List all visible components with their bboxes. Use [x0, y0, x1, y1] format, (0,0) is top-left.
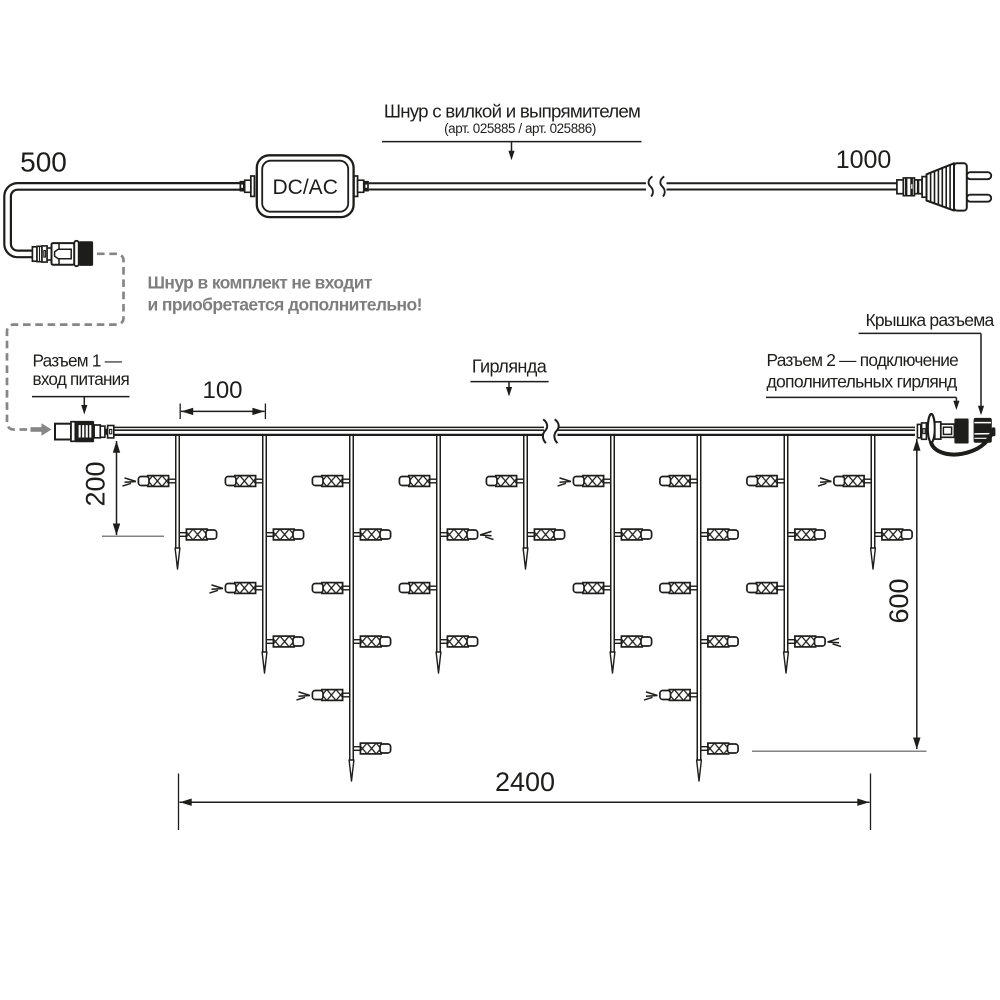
svg-text:дополнительных гирлянд: дополнительных гирлянд — [767, 372, 958, 392]
svg-text:вход питания: вход питания — [33, 370, 130, 389]
svg-text:500: 500 — [20, 147, 67, 178]
svg-text:600: 600 — [884, 578, 914, 623]
svg-text:(арт. 025885 / арт. 025886): (арт. 025885 / арт. 025886) — [444, 121, 596, 136]
svg-text:Разъем 2 — подключение: Разъем 2 — подключение — [767, 350, 959, 370]
svg-text:100: 100 — [202, 377, 242, 404]
svg-text:2400: 2400 — [495, 767, 555, 797]
svg-text:1000: 1000 — [836, 146, 892, 174]
svg-text:Гирлянда: Гирлянда — [472, 356, 548, 376]
svg-text:Разъем 1 —: Разъем 1 — — [33, 350, 123, 370]
svg-text:Крышка разъема: Крышка разъема — [865, 310, 994, 330]
svg-text:Шнур в комплект не входит: Шнур в комплект не входит — [148, 273, 373, 293]
svg-text:и приобретается дополнительно!: и приобретается дополнительно! — [148, 295, 422, 315]
svg-text:DC/AC: DC/AC — [273, 176, 338, 199]
svg-text:200: 200 — [81, 461, 111, 506]
svg-text:Шнур с вилкой и выпрямителем: Шнур с вилкой и выпрямителем — [384, 100, 640, 121]
